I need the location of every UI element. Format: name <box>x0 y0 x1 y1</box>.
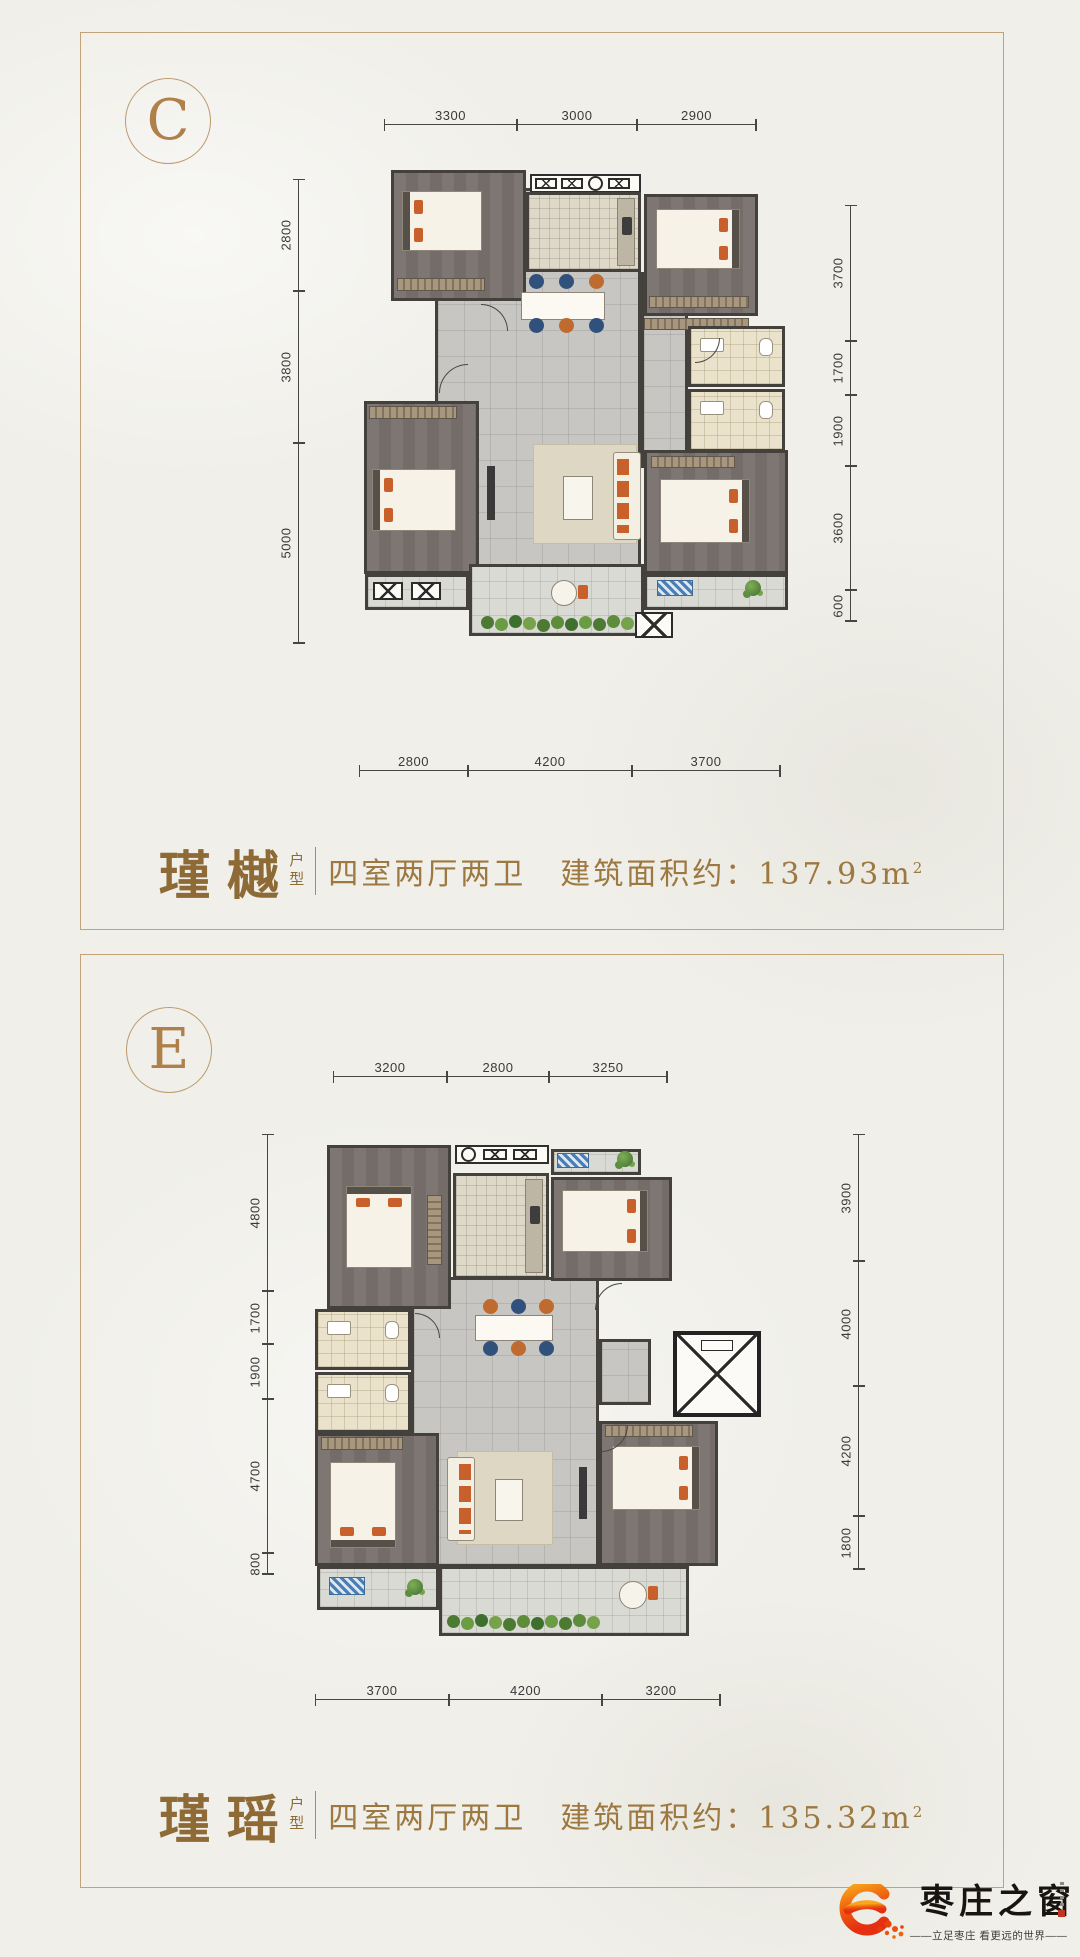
entry-stair-icon <box>635 612 673 638</box>
wardrobe-icon <box>321 1437 403 1450</box>
entry-foyer <box>599 1339 651 1405</box>
caption-divider <box>315 847 316 895</box>
dim-segment: 3250 <box>549 1076 667 1077</box>
dim-segment: 1900 <box>850 395 851 466</box>
dim-segment: 3200 <box>333 1076 447 1077</box>
panel-c: C 3300 3000 2900 2800 3800 5000 3700 170… <box>80 32 1004 930</box>
dim-segment: 4700 <box>267 1399 268 1553</box>
wardrobe-icon <box>651 456 735 468</box>
dim-label: 3200 <box>333 1061 447 1074</box>
bed-icon <box>657 210 739 268</box>
dim-segment: 3600 <box>850 466 851 590</box>
dim-segment: 3700 <box>315 1699 449 1700</box>
drying-rack-icon <box>557 1153 589 1168</box>
dim-label: 4200 <box>449 1684 602 1697</box>
dining-table-icon <box>521 292 605 320</box>
area-sup: 2 <box>913 859 926 877</box>
dim-label: 1700 <box>249 1302 262 1333</box>
dim-segment: 1900 <box>267 1344 268 1399</box>
dim-segment: 3700 <box>850 205 851 341</box>
bed-icon <box>613 1447 699 1509</box>
site-logo: 枣庄之窗 ——立足枣庄 看更远的世界—— <box>830 1870 1080 1957</box>
plan-name-suffix: 户型 <box>287 852 304 890</box>
dim-label: 800 <box>249 1552 262 1575</box>
storage-box-icon <box>373 582 403 600</box>
type-letter: E <box>149 1022 190 1078</box>
area-sup: 2 <box>913 1803 926 1821</box>
area-label: 建筑面积约： <box>560 857 758 892</box>
panel-e: E 3200 2800 3250 4800 1700 1900 4700 800… <box>80 954 1004 1888</box>
window-icon <box>608 178 630 189</box>
brand-name: 枣庄之窗 <box>920 1874 1076 1923</box>
dim-segment: 2800 <box>359 770 468 771</box>
dim-label: 4700 <box>249 1461 262 1492</box>
sofa-icon <box>447 1457 475 1541</box>
area-value: 137.93 <box>758 857 881 892</box>
plan-caption-e: 瑾瑶 户型 四室两厅两卫 建筑面积约：135.32m2 <box>81 1777 1003 1853</box>
plan-caption-c: 瑾樾 户型 四室两厅两卫 建筑面积约：137.93m2 <box>81 833 1003 909</box>
plants-icon <box>481 616 494 629</box>
caption-layout: 四室两厅两卫 <box>328 1793 526 1837</box>
bathroom-2 <box>315 1372 411 1433</box>
dim-label: 5000 <box>280 528 293 559</box>
dim-label: 4800 <box>249 1197 262 1228</box>
dim-segment: 800 <box>267 1553 268 1574</box>
dim-segment: 3800 <box>298 291 299 443</box>
e-swoosh-icon <box>832 1884 906 1942</box>
dim-segment: 3000 <box>517 124 637 125</box>
dim-segment: 4800 <box>267 1134 268 1291</box>
dim-segment: 4200 <box>468 770 632 771</box>
type-letter: C <box>147 93 190 149</box>
round-window-icon <box>588 176 603 191</box>
area-unit: m <box>881 1801 912 1836</box>
bed-icon <box>373 470 455 530</box>
drying-rack-icon <box>329 1577 365 1595</box>
dim-segment: 1800 <box>858 1516 859 1569</box>
dim-label: 3700 <box>315 1684 449 1697</box>
bathroom-1 <box>315 1309 411 1370</box>
patio-table-icon <box>551 580 577 606</box>
window-strip <box>455 1145 549 1164</box>
dim-label: 2800 <box>359 755 468 768</box>
dim-segment: 3300 <box>384 124 517 125</box>
storage-box-icon <box>411 582 441 600</box>
dim-label: 2800 <box>447 1061 549 1074</box>
wardrobe-icon <box>369 406 457 419</box>
type-badge-e: E <box>126 1007 212 1093</box>
caption-layout: 四室两厅两卫 <box>328 849 526 893</box>
balcony-south <box>439 1566 689 1636</box>
caption-area: 建筑面积约：135.32m2 <box>560 1793 925 1837</box>
wardrobe-icon <box>649 296 749 308</box>
dim-label: 3700 <box>632 755 780 768</box>
plan-name: 瑾樾 <box>159 834 295 909</box>
dim-label: 3900 <box>840 1182 853 1213</box>
bathroom-2 <box>688 389 785 452</box>
coffee-table-icon <box>563 476 593 520</box>
dining-chairs-icon <box>529 274 544 289</box>
wardrobe-icon <box>397 278 485 291</box>
caption-divider <box>315 1791 316 1839</box>
door-arc <box>595 1283 622 1310</box>
dim-label: 4000 <box>840 1308 853 1339</box>
dim-label: 3250 <box>549 1061 667 1074</box>
area-value: 135.32 <box>758 1801 881 1836</box>
dim-segment: 2900 <box>637 124 756 125</box>
dim-label: 3200 <box>602 1684 720 1697</box>
dim-segment: 2800 <box>447 1076 549 1077</box>
plant-icon <box>745 580 761 596</box>
tv-icon <box>487 466 495 520</box>
dim-label: 1700 <box>832 353 845 384</box>
bed-icon <box>661 480 749 542</box>
dim-label: 600 <box>832 594 845 617</box>
dim-label: 3800 <box>280 352 293 383</box>
coffee-table-icon <box>495 1479 523 1521</box>
dim-label: 1900 <box>249 1356 262 1387</box>
bed-icon <box>331 1463 395 1547</box>
plants-icon <box>447 1615 460 1628</box>
window-icon <box>513 1149 537 1160</box>
dim-label: 2900 <box>637 109 756 122</box>
dim-segment: 3700 <box>632 770 780 771</box>
kitchen <box>453 1173 549 1279</box>
window-strip <box>530 174 641 193</box>
plant-icon <box>617 1151 633 1167</box>
dim-label: 3600 <box>832 513 845 544</box>
floorplan-e <box>295 1133 815 1673</box>
dining-chairs-icon <box>483 1299 498 1314</box>
type-badge-c: C <box>125 78 211 164</box>
dim-label: 2800 <box>280 220 293 251</box>
dim-label: 3000 <box>517 109 637 122</box>
caption-area: 建筑面积约：137.93m2 <box>560 849 925 893</box>
window-icon <box>535 178 557 189</box>
dim-segment: 600 <box>850 590 851 621</box>
dim-label: 3300 <box>384 109 517 122</box>
area-unit: m <box>881 857 912 892</box>
floorplan-c <box>305 128 795 708</box>
window-icon <box>483 1149 507 1160</box>
dim-label: 4200 <box>840 1436 853 1467</box>
bed-icon <box>347 1187 411 1267</box>
bed-icon <box>563 1191 647 1251</box>
dim-segment: 5000 <box>298 443 299 643</box>
flyer-page: C 3300 3000 2900 2800 3800 5000 3700 170… <box>0 0 1080 1957</box>
area-label: 建筑面积约： <box>560 1801 758 1836</box>
dim-segment: 2800 <box>298 179 299 291</box>
washer-icon <box>461 1147 476 1162</box>
dim-label: 4200 <box>468 755 632 768</box>
drying-rack-icon <box>657 580 693 596</box>
plan-name-suffix: 户型 <box>287 1796 304 1834</box>
dim-label: 1800 <box>840 1527 853 1558</box>
kitchen <box>526 192 641 272</box>
plan-name: 瑾瑶 <box>159 1778 295 1853</box>
dim-segment: 1700 <box>267 1291 268 1344</box>
dim-segment: 3900 <box>858 1134 859 1261</box>
dim-segment: 4000 <box>858 1261 859 1386</box>
dim-segment: 1700 <box>850 341 851 395</box>
dim-segment: 3200 <box>602 1699 720 1700</box>
dim-segment: 4200 <box>449 1699 602 1700</box>
dining-table-icon <box>475 1315 553 1341</box>
patio-table-icon <box>619 1581 647 1609</box>
sofa-icon <box>613 452 641 540</box>
window-icon <box>561 178 583 189</box>
dim-label: 1900 <box>832 415 845 446</box>
plant-icon <box>407 1579 423 1595</box>
wardrobe-icon <box>427 1195 442 1265</box>
artist-signature <box>1060 1882 1064 1906</box>
dim-label: 3700 <box>832 258 845 289</box>
brand-tagline: ——立足枣庄 看更远的世界—— <box>910 1928 1067 1943</box>
bed-icon <box>403 192 481 250</box>
tv-icon <box>579 1467 587 1519</box>
dim-segment: 4200 <box>858 1386 859 1516</box>
elevator-icon <box>673 1331 761 1417</box>
